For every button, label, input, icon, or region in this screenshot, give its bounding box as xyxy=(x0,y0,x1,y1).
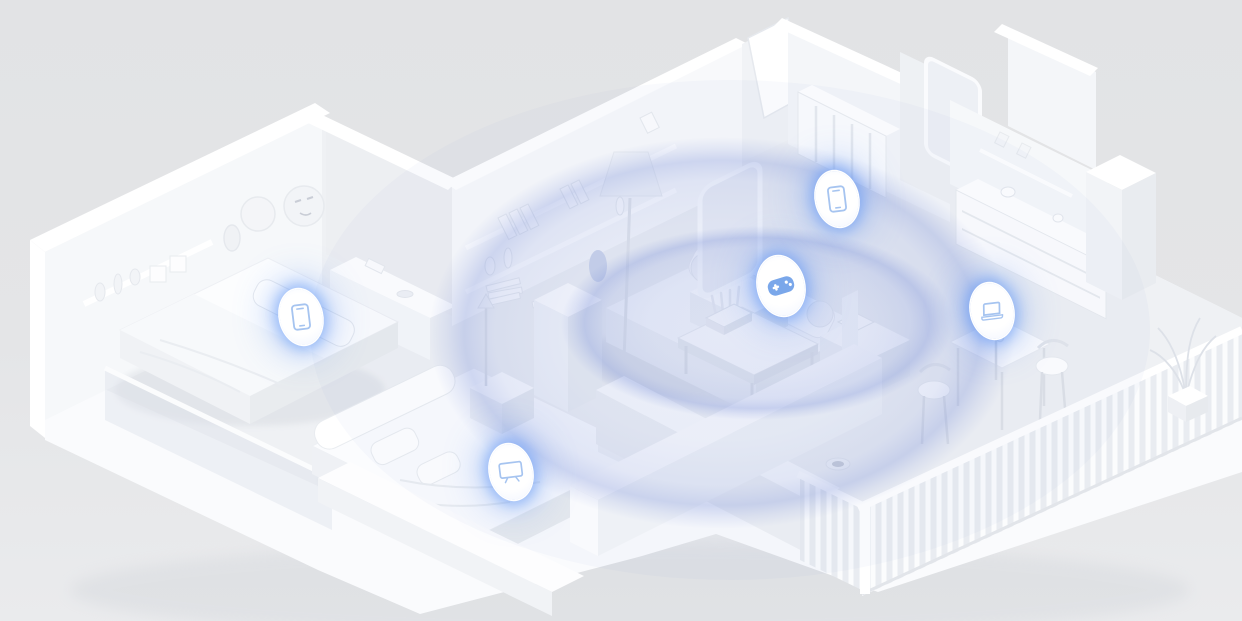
apartment-3d-render xyxy=(0,0,1242,621)
wifi-ripple xyxy=(561,226,953,420)
wifi-coverage-ripples xyxy=(310,80,1150,580)
apartment-wifi-render xyxy=(0,0,1242,621)
